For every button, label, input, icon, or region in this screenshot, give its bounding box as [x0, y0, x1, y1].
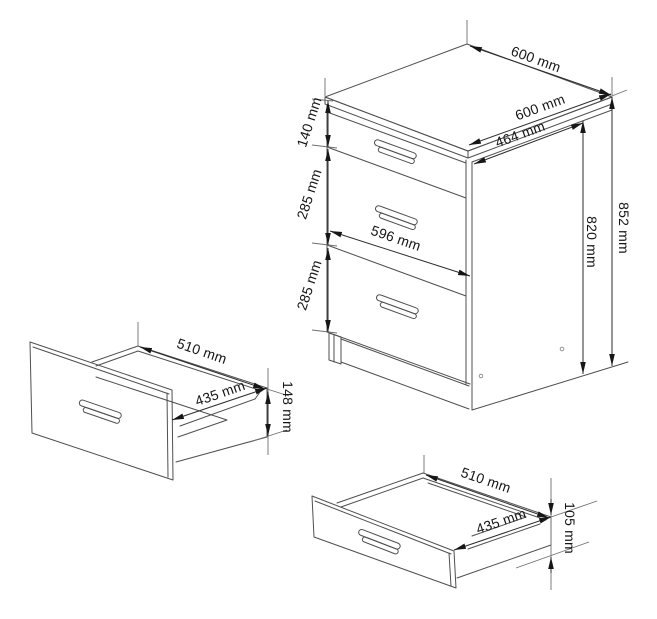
furniture-dimension-diagram: 600 mm 600 mm 464 mm 596 mm 140 mm 285 m… [0, 0, 657, 619]
drawer-small-front-right-inner [449, 553, 451, 586]
dim-label-total-height: 852 mm [616, 202, 632, 254]
drawer-small-front-panel [312, 496, 456, 588]
cabinet-top-slab-front-left [325, 97, 468, 158]
cabinet-top-face [325, 44, 612, 151]
extension-tick [312, 243, 337, 246]
drawer-large-inner-corner [255, 392, 260, 399]
cam-fitting-dot-front [479, 374, 483, 378]
drawer-small-handle [356, 529, 401, 555]
drawer-large-dimensions: 510 mm 435 mm 148 mm [138, 322, 296, 455]
drawer-small-view [312, 473, 551, 588]
drawer1-top-edge [327, 112, 466, 163]
drawer-small-front-top-inner [315, 501, 451, 554]
dim-label-drawer2-height: 285 mm [293, 167, 324, 221]
drawer-large-front-right-inner [167, 393, 168, 477]
cabinet-front-leg [329, 333, 341, 364]
drawer-small-bottom-edge [457, 545, 551, 578]
dimension-drawing-canvas: 600 mm 600 mm 464 mm 596 mm 140 mm 285 m… [0, 0, 657, 619]
drawer1-bottom-edge [327, 147, 466, 198]
drawer-large-handle [77, 399, 122, 424]
plinth-top-edge [341, 339, 469, 386]
dim-label-drawer1-height: 140 mm [293, 95, 324, 149]
dim-label-drawer3-height: 285 mm [293, 258, 324, 312]
dim-label-drawer-small-height: 105 mm [562, 502, 578, 554]
extension-tick [312, 145, 337, 148]
drawer-large-side-wall-base [180, 399, 255, 426]
dim-label-drawer-large-depth: 510 mm [175, 335, 229, 367]
drawer3-handle [374, 294, 419, 319]
extension-line [612, 90, 627, 96]
dim-label-top-depth: 600 mm [509, 43, 563, 76]
dim-label-drawer-large-height: 148 mm [280, 381, 296, 433]
dim-label-drawer-small-width: 435 mm [474, 505, 528, 537]
drawer-large-floor-front-edge [178, 420, 227, 437]
drawer-large-front-panel [30, 342, 173, 480]
cam-fitting-dot-back [560, 347, 564, 351]
dim-label-drawer-small-depth: 510 mm [459, 464, 513, 496]
cabinet-front-bottom-edge [327, 332, 470, 384]
drawer-large-view [30, 342, 267, 480]
dim-label-carcass-height: 820 mm [584, 216, 600, 268]
extension-tick [312, 330, 337, 333]
side-panel-bottom-edge [472, 362, 628, 410]
plinth-bottom-edge [341, 362, 469, 409]
